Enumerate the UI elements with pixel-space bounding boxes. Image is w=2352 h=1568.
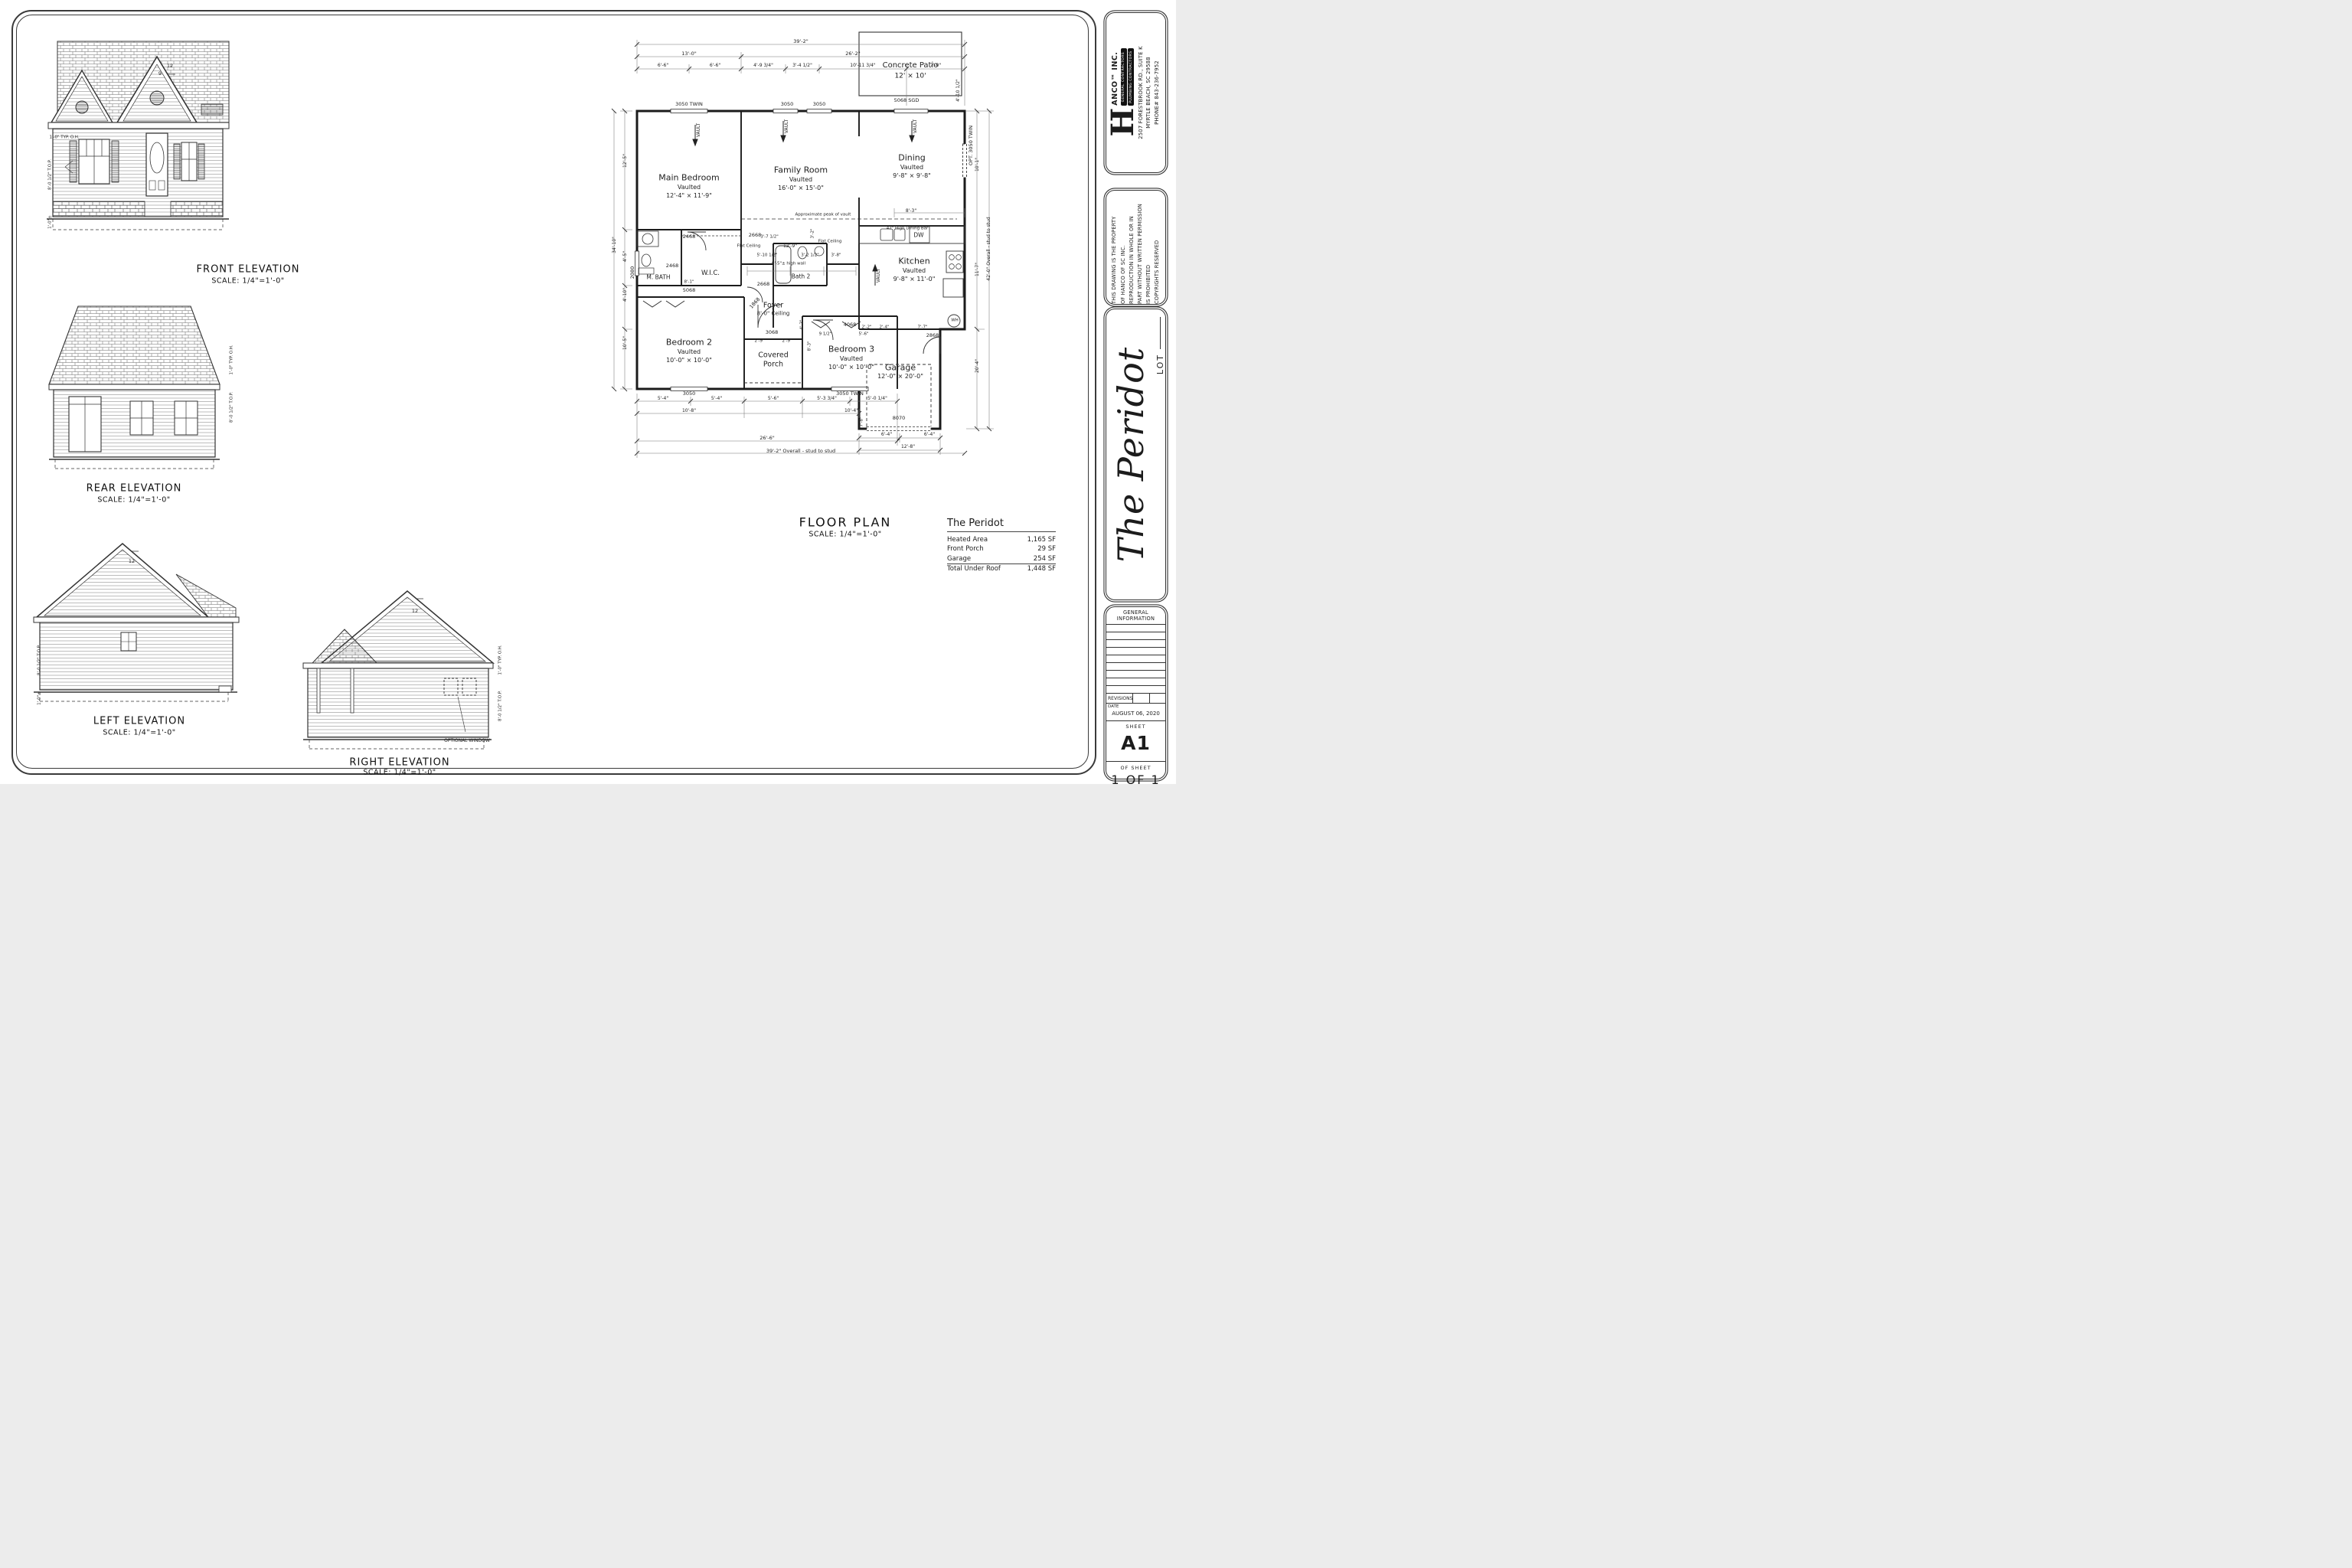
plan-annotation: 2668 [757, 282, 770, 287]
date-row: DATE AUGUST 06, 2020 [1106, 704, 1165, 721]
plan-annotation: 2468 [666, 263, 679, 269]
general-info-header: GENERAL INFORMATION [1106, 607, 1165, 625]
plan-annotation: 6'-6" [658, 64, 668, 68]
plan-annotation: 6'-6" [710, 64, 720, 68]
plan-annotation: 1'-0"± [48, 215, 53, 229]
revisions-label: REVISIONS [1106, 696, 1132, 701]
notice-line: COPYRIGHTS RESERVED [1153, 191, 1161, 304]
plan-annotation: 34'-10" [612, 237, 617, 253]
plan-annotation: 2080 [630, 266, 635, 279]
lot-label: LOT [1155, 354, 1165, 374]
plan-annotation: 3'-4 1/2" [792, 64, 812, 68]
plan-annotation: 3050 [813, 102, 826, 107]
plan-annotation: 3050 TWIN [836, 391, 864, 397]
plan-annotation: Bedroom 3 [828, 345, 874, 354]
front-elevation-scale: SCALE: 1/4"=1'-0" [211, 277, 284, 286]
plan-annotation: VAULT [785, 119, 789, 133]
plan-annotation: 12 [412, 609, 418, 614]
plan-annotation: 5'-6" [768, 397, 779, 401]
area-row-label: Garage [947, 554, 971, 563]
blank-row [1106, 648, 1165, 655]
plan-annotation: 12'-5" [623, 154, 628, 168]
plan-annotation: 4'-10 1/2" [956, 79, 961, 102]
plan-annotation: 5'-6" [858, 332, 868, 337]
sheet-label: SHEET [1106, 721, 1165, 730]
logo-h-initial: H [1111, 108, 1135, 137]
plan-annotation: 13'-0" [681, 51, 697, 57]
area-row-value: 1,448 SF [1027, 564, 1056, 573]
left-elevation-title: LEFT ELEVATION [93, 716, 185, 727]
of-sheet-value: 1 OF 1 [1106, 773, 1165, 784]
plan-annotation: 8'-3" [808, 341, 812, 351]
company-name: ANCO™ INC. [1111, 48, 1119, 105]
plan-annotation: 4'-5" [623, 251, 628, 262]
front-elevation-drawing [42, 37, 234, 259]
blank-row [1106, 671, 1165, 678]
plan-annotation: 12'-4" × 11'-9" [666, 193, 712, 199]
plan-annotation: 3050 [781, 102, 794, 107]
plan-annotation: 3050 [683, 391, 696, 397]
plan-annotation: 3'-8" [831, 253, 841, 258]
plan-annotation: 3'-2" [811, 228, 815, 238]
plan-annotation: 8'-0 1/2" T.O.P. [38, 645, 42, 675]
plan-annotation: 5'-10 1/2" [756, 253, 777, 258]
plan-annotation: 4'-2" [800, 319, 805, 329]
right-elevation-scale: SCALE: 1/4"=1'-0" [363, 769, 436, 777]
plan-annotation: 5068 [683, 288, 696, 293]
sheet-number: A1 [1106, 732, 1165, 754]
plan-annotation: Family Room [774, 166, 828, 175]
notice-line: THIS DRAWING IS THE PROPERTY [1110, 191, 1118, 304]
plan-annotation: 2'-9" [782, 339, 792, 344]
blank-row [1106, 663, 1165, 671]
plan-annotation: 8'-0 1/2" T.O.P. [230, 392, 234, 423]
drawing-sheet: Concrete Patio12' × 10'39'-2"13'-0"26'-2… [0, 0, 1176, 784]
right-elevation-title: RIGHT ELEVATION [349, 757, 449, 769]
plan-annotation: Foyer [763, 302, 783, 309]
blank-row [1106, 625, 1165, 632]
plan-annotation: 1'-0" TYP. O.H. [49, 136, 79, 140]
plan-annotation: 7'-8" [860, 416, 864, 426]
table-row: Garage 254 SF [947, 554, 1056, 563]
plan-annotation: 8'-0" Ceiling [757, 312, 790, 317]
plan-annotation: Vaulted [903, 268, 926, 274]
plan-annotation: 9'-8" × 11'-0" [893, 276, 936, 283]
plan-annotation: 2468 [683, 234, 696, 240]
plan-annotation: M. BATH [646, 274, 670, 280]
plan-annotation: DW [913, 232, 923, 238]
plan-annotation: Bedroom 2 [666, 338, 712, 347]
notice-line: PART WITHOUT WRITTEN PERMISSION [1136, 191, 1144, 304]
blank-row [1106, 632, 1165, 640]
date-label: DATE [1108, 704, 1119, 709]
plan-annotation: Covered [758, 351, 788, 359]
plan-annotation: OPT. 3050 TWIN [969, 126, 974, 165]
area-row-value: 254 SF [1034, 554, 1056, 563]
plan-annotation: 10'-1" [975, 158, 980, 171]
plan-annotation: Dining [898, 154, 926, 162]
of-sheet-row: OF SHEET 1 OF 1 [1106, 762, 1165, 784]
plan-annotation: Vaulted [678, 349, 701, 355]
plan-annotation: 42" High Dining Bar [887, 227, 929, 231]
plan-annotation: 2'-4" [879, 325, 889, 330]
table-row: Total Under Roof 1,448 SF [947, 563, 1056, 573]
area-row-label: Heated Area [947, 535, 988, 544]
plan-annotation: 12'-0" × 20'-0" [877, 374, 923, 380]
plan-annotation: 2'-9" [754, 339, 764, 344]
company-logo: H ANCO™ INC. GENERAL CONTRACTORS PLUMBIN… [1111, 48, 1135, 136]
table-row: Heated Area 1,165 SF [947, 535, 1056, 544]
notice-line: IS PROHIBITED [1145, 191, 1152, 304]
plan-annotation: 9'-8" × 9'-8" [893, 173, 931, 179]
plan-annotation: 6'-4" [924, 433, 935, 437]
company-address-line2: MYRTLE BEACH, SC 29588 [1145, 46, 1152, 139]
plan-annotation: 10'-0" × 10'-0" [828, 364, 874, 371]
plan-name-block: The Peridot LOT [1106, 309, 1166, 600]
lot-blank-line [1160, 317, 1161, 349]
badge-plumbing-contractors: PLUMBING CONTRACTORS [1128, 48, 1134, 105]
plan-annotation: 2668 [749, 233, 762, 238]
plan-annotation: 12 [129, 559, 135, 564]
plan-annotation: 4068 [844, 322, 857, 328]
plan-annotation: 10'-11 3/4" [850, 64, 875, 68]
plan-annotation: 5'-4" [711, 397, 722, 401]
plan-annotation: 8'-0 1/2" T.O.P. [48, 159, 53, 190]
plan-annotation: 8'-0 1/2" T.O.P. [498, 691, 503, 721]
company-phone: PHONE# 843-236-7952 [1153, 46, 1161, 139]
plan-annotation: 7'-0" [930, 64, 941, 68]
revision-cell [1132, 694, 1148, 703]
plan-annotation: 4'-10" [623, 288, 628, 302]
plan-annotation: VAULT [913, 119, 918, 133]
plan-annotation: 10'-5" [623, 336, 628, 350]
plan-annotation: VAULT [877, 269, 881, 283]
plan-annotation: 8'-1" [684, 280, 694, 285]
plan-annotation: 3050 TWIN [675, 102, 703, 107]
plan-annotation: 11'-7" [975, 263, 980, 276]
plan-annotation: Bath 2 [792, 273, 811, 279]
plan-annotation: Garage [885, 364, 916, 372]
notice-line: OF HANCO OF SC INC. [1119, 191, 1127, 304]
date-value: AUGUST 06, 2020 [1106, 710, 1165, 717]
plan-annotation: 16'-0" × 15'-0" [778, 185, 824, 191]
plan-name-script: The Peridot [1106, 309, 1155, 599]
plan-annotation: 5'-0 1/4" [867, 397, 887, 401]
blank-row [1106, 686, 1165, 694]
plan-annotation: 26'-6" [759, 436, 775, 441]
plan-annotation: 10'-8" [682, 409, 696, 413]
plan-annotation: 12'-9" [783, 244, 797, 249]
plan-annotation: 1'-0" TYP. O.H. [230, 345, 234, 374]
plan-annotation: 5'-3 3/4" [817, 397, 837, 401]
plan-annotation: 42'-0" Overall - stud to stud [987, 217, 991, 280]
company-title-block: H ANCO™ INC. GENERAL CONTRACTORS PLUMBIN… [1106, 12, 1166, 173]
blank-row [1106, 640, 1165, 648]
floor-plan-scale: SCALE: 1/4"=1'-0" [808, 531, 881, 539]
area-table-title: The Peridot [947, 518, 1056, 532]
plan-annotation: 12'-8" [901, 445, 915, 449]
floor-plan-title: FLOOR PLAN [799, 515, 892, 530]
plan-annotation: 4'-9 3/4" [753, 64, 773, 68]
badge-general-contractors: GENERAL CONTRACTORS [1121, 48, 1127, 105]
plan-annotation: W.I.C. [701, 270, 720, 277]
plan-annotation: Vaulted [840, 356, 863, 362]
plan-annotation: Flat Ceiling [818, 240, 842, 244]
copyright-notice-block: THIS DRAWING IS THE PROPERTY OF HANCO OF… [1106, 190, 1166, 305]
plan-annotation: 10'-4" [844, 409, 858, 413]
rear-elevation-drawing [44, 299, 224, 479]
plan-annotation: 12' × 10' [894, 73, 926, 80]
plan-annotation: 9 1/2" [819, 332, 832, 337]
plan-annotation: 7'-7" [917, 325, 927, 330]
blank-row [1106, 655, 1165, 663]
area-row-value: 29 SF [1037, 544, 1056, 554]
plan-annotation: 9 [158, 71, 162, 77]
plan-annotation: Vaulted [789, 177, 812, 183]
plan-annotation: 2'-2" [861, 325, 871, 330]
plan-annotation: 26'-2" [845, 51, 861, 57]
plan-annotation: WH [951, 318, 959, 323]
plan-annotation: 9'-5"± high wall [772, 262, 805, 266]
area-row-label: Total Under Roof [947, 564, 1001, 573]
plan-annotation: 6'-4" [881, 433, 892, 437]
plan-annotation: 5'-4" [658, 397, 668, 401]
front-elevation-title: FRONT ELEVATION [197, 264, 300, 276]
plan-annotation: 5068 SGD [894, 98, 920, 103]
of-sheet-label: OF SHEET [1106, 762, 1165, 771]
table-row: Front Porch 29 SF [947, 544, 1056, 554]
plan-annotation: 3068 [766, 330, 779, 335]
plan-annotation: 20'-4" [975, 359, 980, 373]
plan-annotation: 12 [167, 64, 173, 69]
left-elevation-drawing [31, 534, 241, 714]
plan-annotation: VAULT [697, 123, 701, 137]
plan-annotation: 3'-7 1/2" [760, 235, 779, 240]
plan-annotation: Vaulted [900, 165, 923, 171]
plan-annotation: 8070 [893, 416, 906, 421]
plan-annotation: 10'-0" × 10'-0" [666, 358, 712, 364]
rear-elevation-title: REAR ELEVATION [87, 483, 182, 495]
area-summary-table: The Peridot Heated Area 1,165 SF Front P… [947, 518, 1056, 573]
plan-annotation: Approximate peak of vault [795, 213, 851, 217]
plan-annotation: 8'-3" [906, 209, 916, 214]
plan-annotation: Vaulted [678, 185, 701, 191]
revision-cell [1149, 694, 1165, 703]
plan-annotation: 39'-2" [793, 39, 808, 44]
area-row-label: Front Porch [947, 544, 984, 554]
area-row-value: 1,165 SF [1027, 535, 1056, 544]
floor-plan-drawing [597, 21, 1026, 511]
plan-annotation: 2868 [926, 333, 939, 338]
plan-annotation: Flat Ceiling [737, 244, 761, 249]
notice-line: REPRODUCTION IN WHOLE OR IN [1128, 191, 1135, 304]
plan-annotation: OPTIONAL WINDOW [444, 739, 490, 743]
general-info-block: GENERAL INFORMATION REVISIONS DATE AUGUS… [1106, 606, 1166, 779]
rear-elevation-scale: SCALE: 1/4"=1'-0" [97, 496, 170, 505]
plan-annotation: Porch [763, 361, 783, 368]
company-address-line1: 2507 FORESTBROOK RD., SUITE K [1137, 46, 1145, 139]
plan-annotation: 1'-0"± [38, 691, 42, 705]
revisions-row: REVISIONS [1106, 694, 1165, 704]
plan-annotation: 39'-2" Overall - stud to stud [766, 449, 835, 454]
plan-annotation: Main Bedroom [658, 174, 720, 182]
plan-annotation: Kitchen [898, 257, 929, 266]
plan-annotation: 1'-0" TYP. O.H. [498, 645, 503, 675]
left-elevation-scale: SCALE: 1/4"=1'-0" [103, 729, 175, 737]
plan-annotation: 3'-2 1/2" [801, 253, 819, 258]
sheet-row: SHEET A1 [1106, 721, 1165, 762]
blank-row [1106, 678, 1165, 686]
